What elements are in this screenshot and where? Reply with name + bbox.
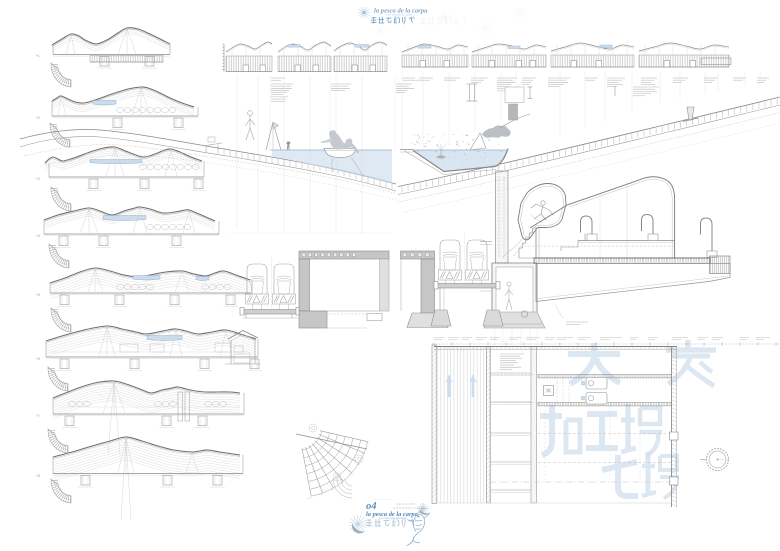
svg-text:i n s t a l a c i o n e s: i n s t a l a c i o n e s	[374, 498, 392, 501]
svg-text:+6: +6	[36, 357, 40, 361]
svg-text:+3: +3	[36, 177, 40, 181]
svg-text:en el mercado del tsukiji: en el mercado del tsukiji	[386, 13, 413, 16]
svg-text:+2: +2	[36, 116, 40, 120]
svg-text:C O N S T R U C T I V A: C O N S T R U C T I V A	[393, 506, 425, 510]
svg-text:+4: +4	[36, 234, 40, 238]
svg-text:+7: +7	[36, 414, 40, 418]
svg-text:+5: +5	[36, 293, 40, 297]
svg-text:+1: +1	[36, 54, 40, 58]
svg-text:+8: +8	[36, 474, 40, 478]
